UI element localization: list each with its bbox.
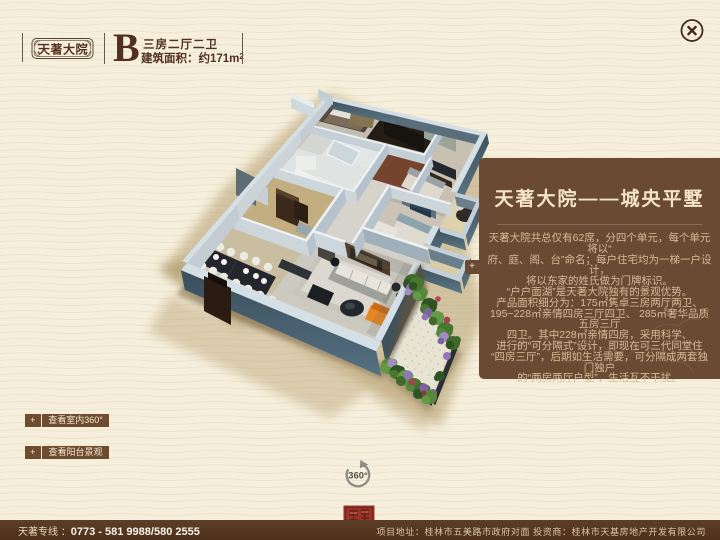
svg-text:天著大院: 天著大院: [38, 42, 88, 57]
svg-text:360°: 360°: [348, 471, 368, 482]
